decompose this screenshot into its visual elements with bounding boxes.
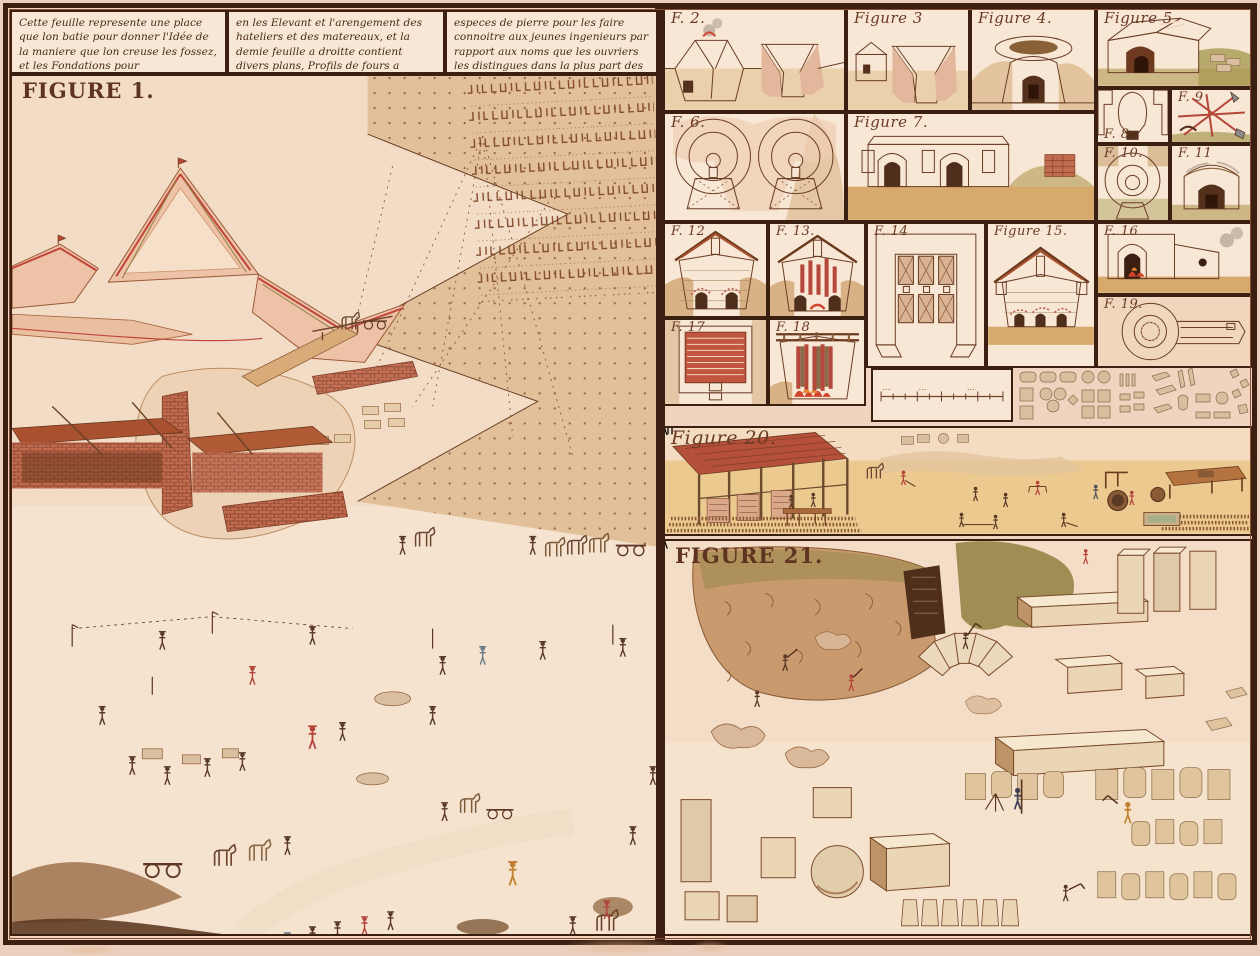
figure-7-label: Figure 7.	[854, 115, 928, 130]
figure-11-label: F. 11	[1178, 147, 1212, 160]
figure-13-label: F. 13.	[776, 225, 815, 238]
figure-6-panel: F. 6.	[663, 112, 846, 222]
figure-10-label: F. 10.	[1104, 147, 1143, 160]
figure-1-label: FIGURE 1.	[22, 80, 155, 101]
figure-3-label: Figure 3	[854, 11, 923, 26]
figure-16-label: F. 16	[1104, 225, 1138, 238]
figure-15-illustration	[988, 224, 1094, 366]
figure-13-panel: F. 13.	[768, 222, 866, 318]
scale-bar-panel	[871, 368, 1013, 422]
scale-bar-illustration	[873, 370, 1011, 420]
figure-3-panel: Figure 3	[846, 8, 970, 112]
figure-4-panel: Figure 4.	[970, 8, 1096, 112]
paper-stain	[690, 940, 730, 954]
figure-21-illustration	[665, 541, 1251, 934]
figure-5-panel: Figure 5	[1096, 8, 1253, 88]
figure-10-panel: F. 10.	[1096, 144, 1170, 222]
figure-6-label: F. 6.	[671, 115, 705, 130]
figure-17-panel: F. 17	[663, 318, 768, 406]
figure-16-panel: F. 16	[1096, 222, 1253, 295]
figure-21-label: FIGURE 21.	[675, 545, 823, 566]
figure-19-panel: F. 19.	[1096, 295, 1253, 368]
figure-9-label: F. 9	[1178, 91, 1204, 104]
figure-7-panel: Figure 7.	[846, 112, 1096, 222]
figure-1-panel: FIGURE 1.	[10, 74, 658, 936]
header-text-col2: en les Elevant et l'arengement des hatel…	[227, 10, 445, 74]
figure-15-label: Figure 15.	[994, 225, 1068, 238]
figure-21-panel: FIGURE 21.	[663, 539, 1253, 936]
figure-14-panel: F. 14	[866, 222, 986, 368]
figure-20-panel: Figure 20.	[663, 426, 1253, 536]
figure-18-label: F. 18	[776, 321, 810, 334]
header-text-col3: especes de pierre pour les faire connoit…	[445, 10, 658, 74]
header-text-col1: Cette feuille represente une place que l…	[10, 10, 227, 74]
figure-2-label: F. 2.	[671, 11, 705, 26]
figure-5-label: Figure 5	[1104, 11, 1173, 26]
figure-15-panel: Figure 15.	[986, 222, 1096, 368]
figure-12-panel: F. 12	[663, 222, 768, 318]
figure-19-label: F. 19.	[1104, 298, 1143, 311]
figure-9-panel: F. 9	[1170, 88, 1253, 144]
figure-14-illustration	[868, 224, 984, 366]
figure-18-panel: F. 18	[768, 318, 866, 406]
figure-4-label: Figure 4.	[978, 11, 1052, 26]
figure-8-label: F. 8	[1104, 128, 1130, 141]
figure-20-label: Figure 20.	[671, 429, 776, 448]
figure-11-panel: F. 11	[1170, 144, 1253, 222]
manuscript-plate-page: Cette feuille represente une place que l…	[0, 0, 1260, 956]
brick-shapes-zone	[1016, 368, 1253, 426]
figure-1-illustration	[12, 76, 656, 934]
brick-shapes-illustration	[1016, 368, 1253, 426]
figure-17-label: F. 17	[671, 321, 705, 334]
figure-14-label: F. 14	[874, 225, 908, 238]
figure-2-panel: F. 2.	[663, 8, 846, 112]
fascine-rows	[467, 76, 656, 302]
paper-stain	[60, 944, 120, 956]
figure-8-panel: F. 8	[1096, 88, 1170, 144]
figure-12-label: F. 12	[671, 225, 705, 238]
